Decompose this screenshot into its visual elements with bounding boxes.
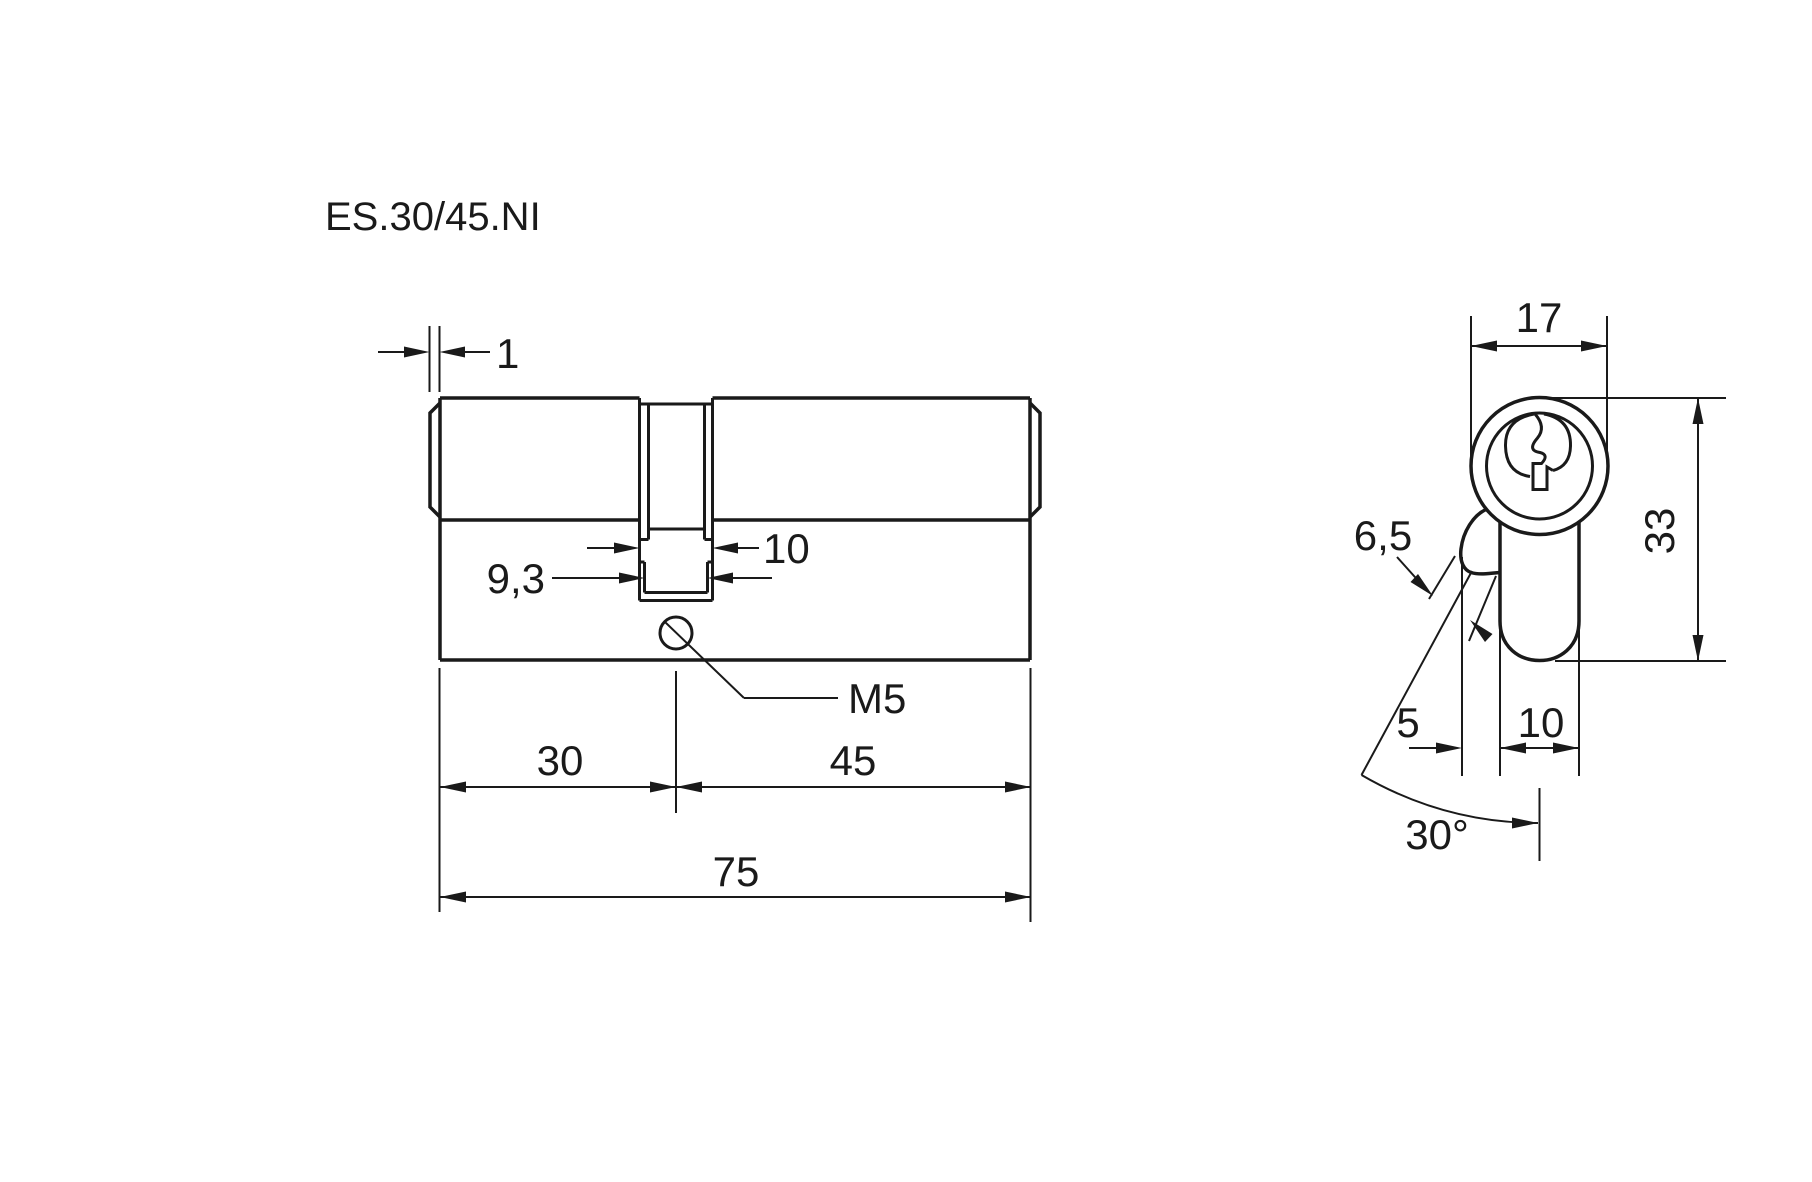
canvas-background (0, 0, 1812, 1182)
dim-length-a-label: 30 (537, 737, 584, 784)
technical-drawing-page: ES.30/45.NI M5 1 10 (0, 0, 1812, 1182)
dim-cam-angle-label: 30° (1405, 811, 1469, 858)
dim-total-label: 75 (713, 848, 760, 895)
drawing-title: ES.30/45.NI (325, 195, 541, 239)
dim-length-b-label: 45 (830, 737, 877, 784)
dim-width-label: 17 (1516, 294, 1563, 341)
dim-height-label: 33 (1636, 508, 1683, 555)
dim-cam-outer-label: 10 (763, 525, 810, 572)
cylinder-dimension-drawing: ES.30/45.NI M5 1 10 (0, 0, 1812, 1182)
dim-cap-label: 1 (496, 330, 519, 377)
dim-neck-width-label: 10 (1518, 699, 1565, 746)
dim-cam-throw-label: 6,5 (1354, 512, 1412, 559)
dim-offset-label: 5 (1396, 699, 1419, 746)
screw-thread-label: M5 (848, 675, 906, 722)
dim-cam-inner-label: 9,3 (487, 555, 545, 602)
